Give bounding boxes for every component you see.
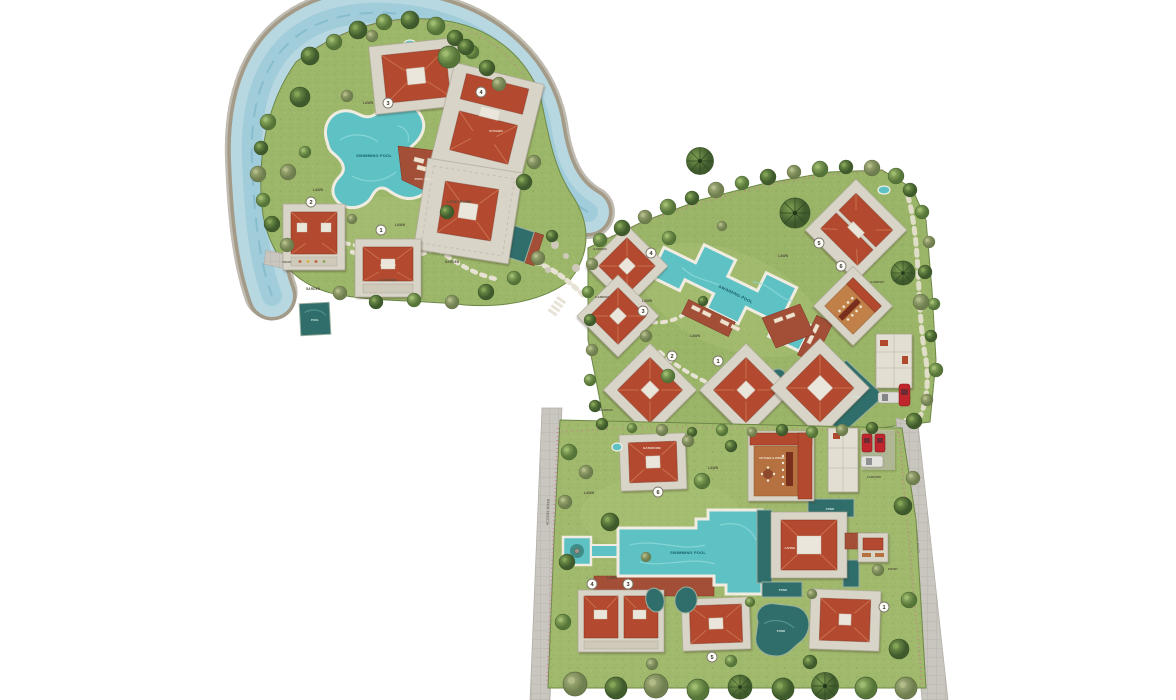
label-central-garden-3: GARDEN [870, 280, 884, 284]
svg-text:1: 1 [379, 228, 382, 234]
label-west-lawn-2: LAWN [395, 223, 406, 227]
white-car [878, 392, 900, 403]
svg-text:1: 1 [882, 605, 885, 611]
svg-text:5: 5 [817, 241, 820, 247]
villa-marker-south-4: 4 [587, 579, 597, 589]
central-spa-pool [878, 186, 890, 194]
west-villa-2 [283, 204, 345, 270]
villa-marker-west-2: 2 [306, 197, 316, 207]
villa-marker-central-4: 4 [646, 248, 656, 258]
villa-marker-central-6: 6 [836, 261, 846, 271]
villa-marker-central-3: 3 [638, 306, 648, 316]
label-central-garden-1: GARDEN [593, 247, 607, 251]
villa-marker-south-6: 6 [653, 487, 663, 497]
label-west-garden-2: GARDEN [306, 287, 321, 291]
label-south-entry: ENTRY [888, 567, 898, 571]
fountain-statue [575, 549, 580, 554]
site-plan-page: SWIMMING POOL [0, 0, 1176, 700]
label-west-bedroom: BEDROOM [380, 263, 396, 267]
label-central-pond: POND [852, 395, 861, 399]
villa-marker-central-2: 2 [667, 351, 677, 361]
south-entry-pavilion [858, 533, 888, 562]
south-spa-pool [612, 443, 622, 451]
west-living-pavilion [413, 158, 522, 264]
south-bathroom-pavilion [619, 433, 687, 491]
label-west-swimming-pool: SWIMMING POOL [356, 153, 392, 158]
south-villa-1 [809, 589, 881, 651]
site-plan-canvas: SWIMMING POOL [0, 0, 1176, 700]
label-south-living: LIVING [785, 546, 796, 550]
label-south-bathroom: BATHROOM [643, 446, 661, 450]
villa-marker-south-3: 3 [623, 579, 633, 589]
svg-text:6: 6 [839, 264, 842, 270]
central-service-building [876, 334, 912, 388]
label-west-road: ROAD [283, 260, 292, 264]
label-west-living-room: LIVING ROOM [447, 200, 471, 204]
svg-text:6: 6 [656, 490, 659, 496]
label-west-kitchen: KITCHEN [489, 129, 502, 133]
west-villa-1 [355, 239, 421, 297]
label-south-lawn-2: LAWN [584, 491, 595, 495]
svg-text:2: 2 [670, 354, 673, 360]
label-south-pond-3: POND [777, 629, 786, 633]
label-west-lawn-1: LAWN [313, 188, 324, 192]
label-south-kitchen-dining: KITCHEN & DINING [759, 456, 785, 460]
label-central-garden-4: GARDEN [599, 408, 613, 412]
villa-marker-central-1: 1 [713, 356, 723, 366]
villa-marker-south-1: 1 [879, 602, 889, 612]
villa-marker-west-4: 4 [476, 87, 486, 97]
svg-text:5: 5 [710, 655, 713, 661]
label-south-lawn-3: LAWN [607, 576, 618, 580]
label-west-garden-1: GARDEN [445, 260, 460, 264]
label-central-lawn-1: LAWN [778, 254, 789, 258]
label-south-pond-1: POND [826, 507, 835, 511]
label-south-carpark: CARPARK [867, 475, 882, 479]
svg-text:2: 2 [309, 200, 312, 206]
label-west-pool-deck: POOL DECK [415, 177, 435, 181]
label-central-lawn-2: LAWN [690, 334, 701, 338]
label-south-pond-2: POND [779, 588, 788, 592]
label-west-bathroom: BATHROOM [379, 278, 397, 282]
label-central-garden-2: GARDEN [595, 295, 609, 299]
villa-marker-west-3: 3 [383, 98, 393, 108]
svg-text:3: 3 [626, 582, 629, 588]
label-west-pool: POOL [311, 318, 320, 322]
south-living-pavilion [771, 512, 847, 578]
label-south-lawn-1: LAWN [708, 466, 719, 470]
villa-marker-south-5: 5 [707, 652, 717, 662]
svg-text:3: 3 [386, 101, 389, 107]
label-central-lawn-3: LAWN [642, 299, 653, 303]
villa-marker-central-5: 5 [814, 238, 824, 248]
label-south-swimming-pool: SWIMMING POOL [670, 550, 706, 555]
svg-text:3: 3 [641, 309, 644, 315]
villa-marker-west-1: 1 [376, 225, 386, 235]
label-west-lawn-3: LAWN [363, 101, 374, 105]
svg-text:1: 1 [716, 359, 719, 365]
south-kitchen-dining-pavilion [748, 431, 814, 501]
